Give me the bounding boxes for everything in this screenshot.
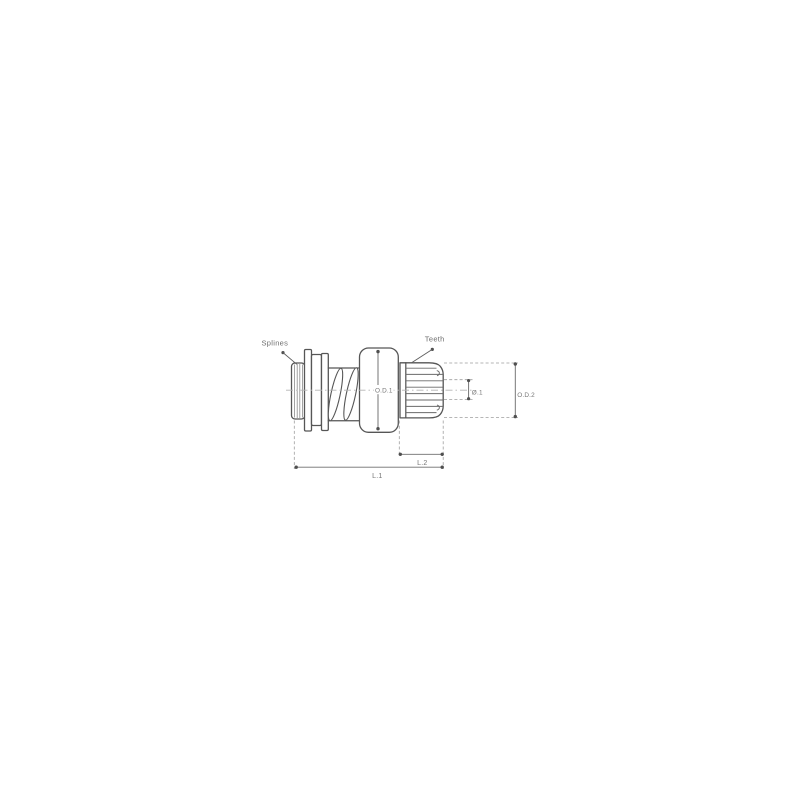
od2-label: O.D.2 (517, 392, 535, 399)
id1-arrow-dot (467, 379, 470, 382)
id1-arrow-dot (467, 397, 470, 400)
od1-arrow-dot (376, 427, 379, 430)
l2-label: L.2 (417, 460, 427, 467)
sleeve-cap (292, 363, 306, 419)
spring-coil (341, 367, 361, 421)
teeth-leader-line (411, 349, 433, 363)
od2-arrow-dot (514, 415, 517, 418)
thrust-washer-rear (322, 354, 329, 431)
od1-arrow-dot (376, 350, 379, 353)
od1-label: O.D.1 (375, 387, 393, 394)
starter-drive-diagram: O.D.1 Ø.1 O.D.2 L.2 (0, 0, 800, 800)
teeth-label: Teeth (425, 334, 445, 343)
drive-spring (325, 367, 361, 422)
id1-label: Ø.1 (472, 389, 483, 396)
label-teeth: Teeth (411, 334, 445, 363)
dim-id1: Ø.1 (444, 379, 483, 400)
splines-label: Splines (262, 338, 289, 347)
splines-leader-line (283, 353, 297, 365)
od2-arrow-dot (514, 362, 517, 365)
l1-arrow-dot (295, 466, 298, 469)
l2-arrow-dot (441, 453, 444, 456)
page: O.D.1 Ø.1 O.D.2 L.2 (0, 0, 800, 800)
dim-l2: L.2 (399, 421, 444, 470)
dim-od2: O.D.2 (444, 362, 535, 418)
label-splines: Splines (262, 338, 297, 364)
l2-arrow-dot (399, 453, 402, 456)
l1-label: L.1 (372, 473, 382, 480)
l1-arrow-dot (441, 466, 444, 469)
